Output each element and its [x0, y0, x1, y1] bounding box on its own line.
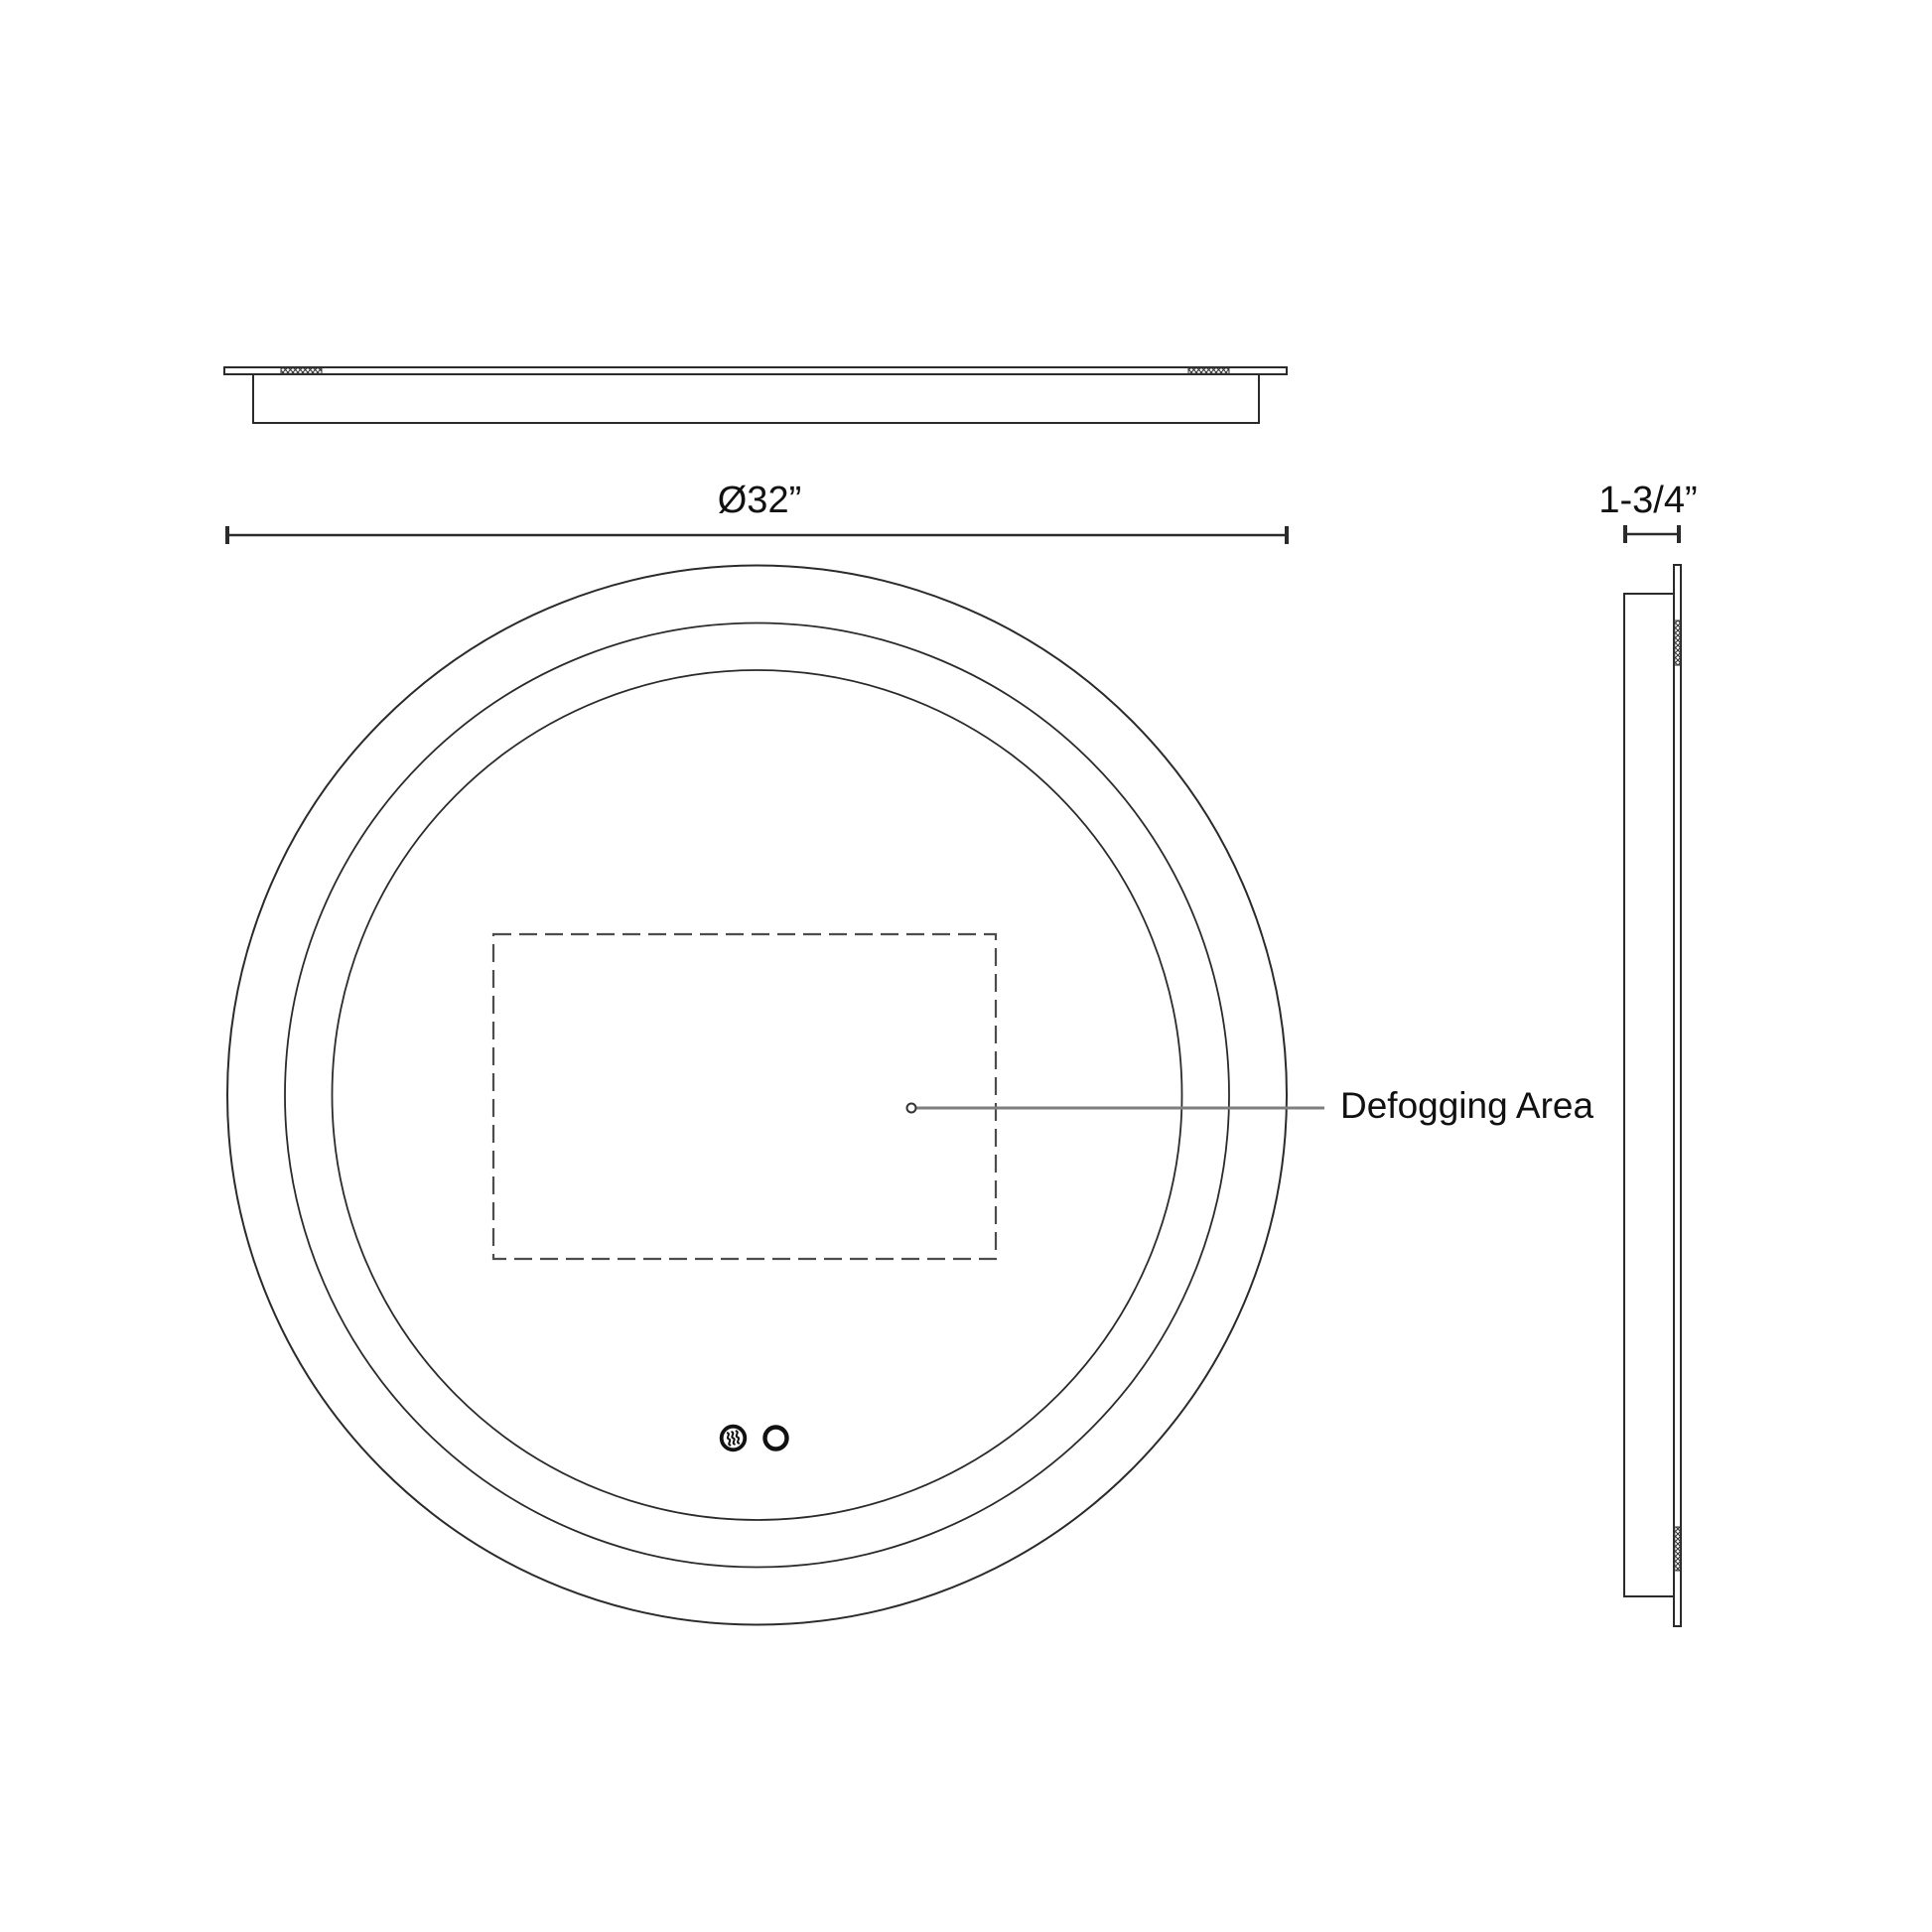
- leader-marker-dot: [907, 1104, 916, 1113]
- top-view: [224, 367, 1287, 423]
- defogging-area-callout: Defogging Area: [907, 1085, 1594, 1126]
- defogger-icon-steam-waves: [727, 1431, 740, 1446]
- top-view-mounting-hatch-right: [1188, 368, 1229, 374]
- led-ring-outer-circle: [285, 623, 1229, 1568]
- defogging-area-outline: [493, 934, 996, 1259]
- front-diameter-dimension: Ø32”: [227, 480, 1287, 544]
- side-view-mounting-hatch-top: [1675, 621, 1681, 665]
- defogging-area-label: Defogging Area: [1340, 1085, 1594, 1126]
- top-view-mounting-hatch-left: [281, 368, 322, 374]
- top-view-mirror-glass: [224, 367, 1287, 374]
- light-button-icon: [765, 1428, 787, 1449]
- front-diameter-label: Ø32”: [718, 480, 801, 521]
- mirror-outer-edge-circle: [227, 566, 1287, 1625]
- defogger-steam-icon: [722, 1427, 746, 1450]
- front-view: Defogging Area: [227, 566, 1594, 1625]
- side-depth-label: 1-3/4”: [1598, 480, 1697, 521]
- mirror-spec-drawing-page: Ø32” Defogging Area: [0, 0, 1932, 1932]
- side-view-mirror-glass: [1674, 565, 1681, 1626]
- top-view-backing-box: [253, 374, 1259, 423]
- side-view: [1624, 565, 1681, 1626]
- side-depth-dimension: 1-3/4”: [1598, 480, 1697, 543]
- side-view-backing-box: [1624, 594, 1674, 1596]
- technical-drawing: Ø32” Defogging Area: [0, 0, 1932, 1932]
- side-view-mounting-hatch-bottom: [1675, 1527, 1681, 1571]
- led-ring-inner-circle: [333, 670, 1182, 1520]
